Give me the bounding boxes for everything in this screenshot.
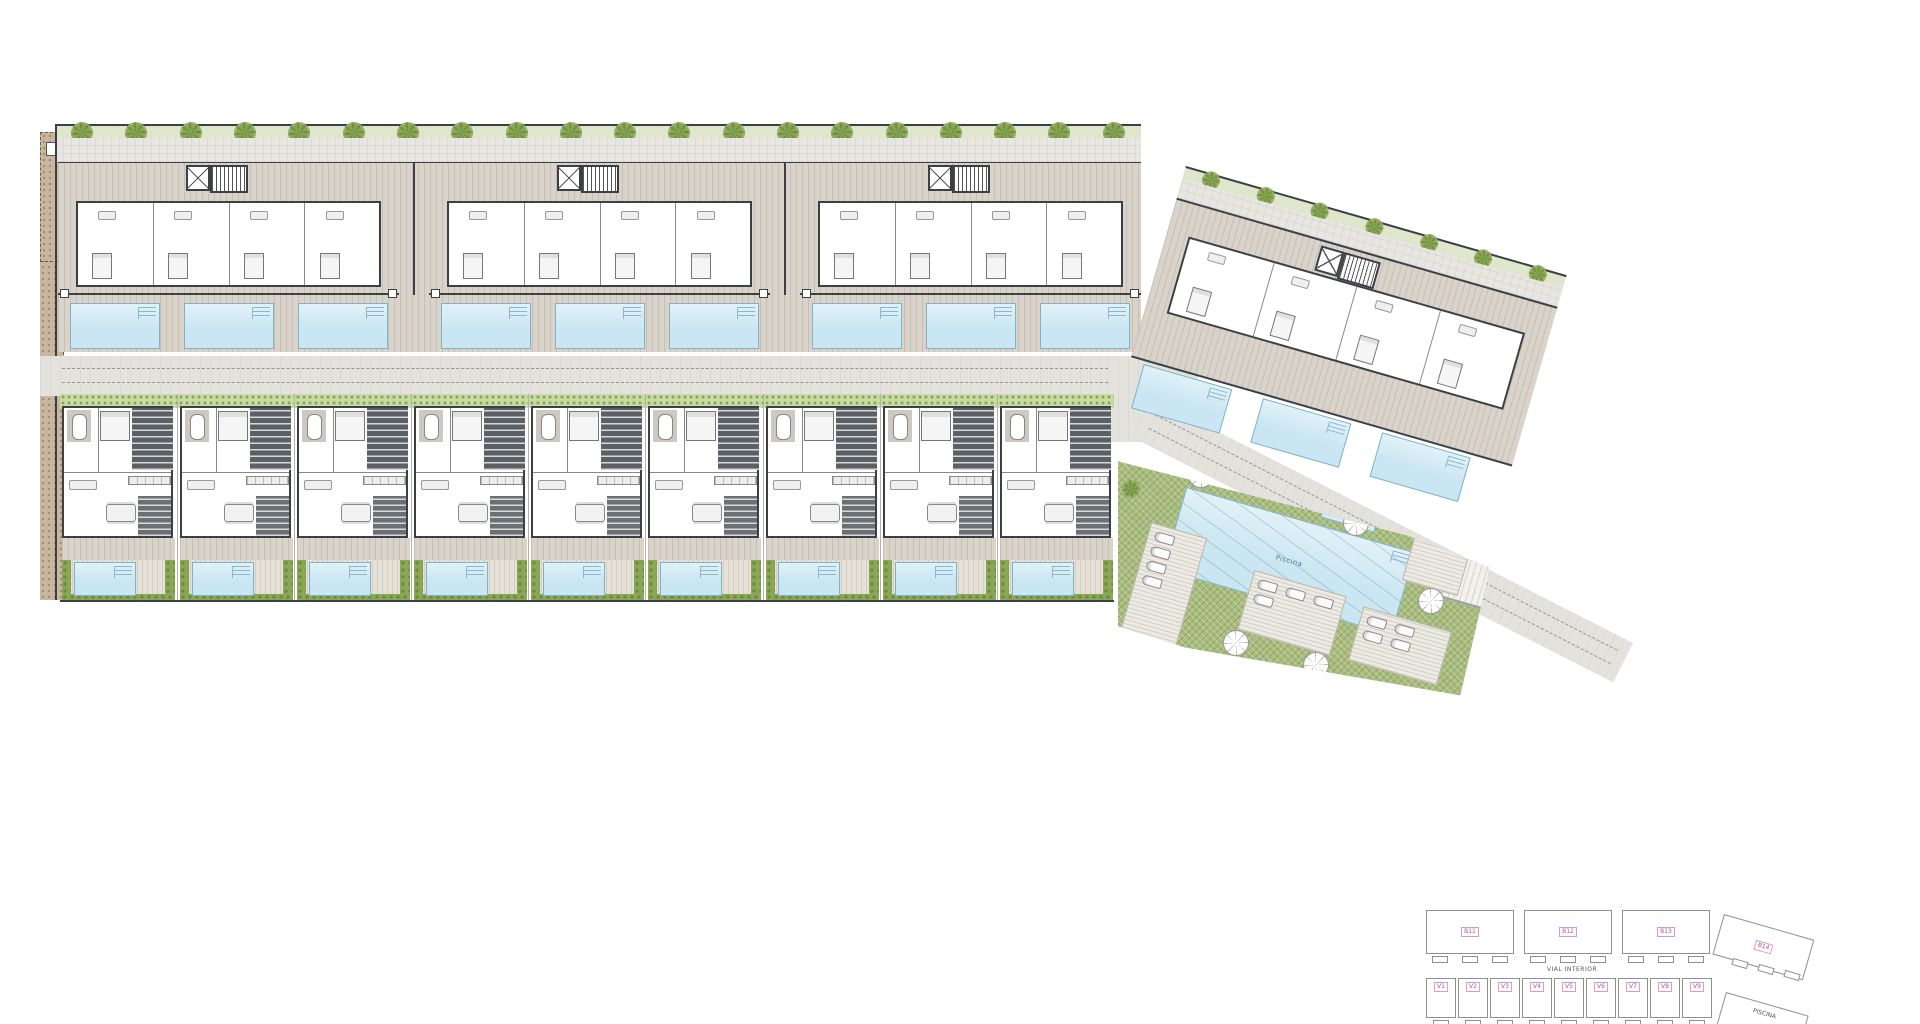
bed-icon bbox=[1437, 359, 1463, 390]
key-plan-pool-square bbox=[1529, 1020, 1545, 1024]
key-plan-villa: V5 bbox=[1554, 978, 1584, 1018]
private-pool bbox=[309, 562, 371, 596]
pool-steps-icon bbox=[252, 307, 270, 319]
bathtub-icon bbox=[653, 410, 677, 442]
interior-wall bbox=[919, 408, 920, 472]
key-plan-villa: V3 bbox=[1490, 978, 1520, 1018]
villa-unit bbox=[411, 394, 528, 600]
interior-wall bbox=[971, 203, 972, 285]
villa-unit bbox=[880, 394, 997, 600]
villa-terrace-deck bbox=[531, 538, 644, 560]
key-plan-villa-label: V7 bbox=[1626, 982, 1640, 992]
dining-table-icon bbox=[810, 504, 840, 522]
sofa-icon bbox=[1068, 211, 1086, 220]
bed-icon bbox=[1353, 335, 1379, 366]
key-plan-pool-square bbox=[1657, 1020, 1673, 1024]
key-plan-pool-square bbox=[1433, 1020, 1449, 1024]
pergola-post bbox=[1496, 557, 1502, 563]
key-plan-pool-square bbox=[1688, 956, 1704, 963]
bathtub-icon bbox=[536, 410, 560, 442]
kitchen-counter-icon bbox=[480, 476, 523, 485]
pool-steps-icon bbox=[700, 566, 718, 578]
apartment-block bbox=[800, 163, 1141, 353]
sun-deck bbox=[1119, 522, 1207, 651]
bed-icon bbox=[834, 253, 854, 279]
stairs-icon bbox=[953, 408, 994, 470]
bed-icon bbox=[569, 411, 599, 441]
interior-wall bbox=[1335, 287, 1357, 360]
stair-core bbox=[928, 165, 992, 195]
perimeter-hedge-north bbox=[55, 124, 1141, 138]
villa-rear-garden bbox=[414, 560, 527, 600]
pool-steps-icon bbox=[880, 307, 898, 319]
pool-steps-icon bbox=[623, 307, 641, 319]
private-pool bbox=[926, 303, 1016, 349]
tree-icon bbox=[1122, 480, 1140, 498]
kitchen-counter-icon bbox=[832, 476, 875, 485]
interior-road bbox=[40, 356, 1145, 396]
pool-steps-icon bbox=[114, 566, 132, 578]
villa-rear-garden bbox=[531, 560, 644, 600]
sun-lounger bbox=[1256, 579, 1278, 594]
terrace-parapet bbox=[429, 293, 770, 295]
private-pool bbox=[669, 303, 759, 349]
stairs-icon bbox=[959, 496, 992, 536]
key-plan-block: B12 bbox=[1524, 910, 1612, 954]
sofa-icon bbox=[538, 480, 566, 490]
pool-steps-icon bbox=[1326, 421, 1347, 437]
private-pool bbox=[812, 303, 902, 349]
key-plan-villa: V2 bbox=[1458, 978, 1488, 1018]
kitchen-counter-icon bbox=[597, 476, 640, 485]
sofa-icon bbox=[621, 211, 639, 220]
villa-terrace-deck bbox=[766, 538, 879, 560]
interior-wall bbox=[675, 203, 676, 285]
terrace-gate-icon bbox=[431, 289, 440, 298]
bed-icon bbox=[921, 411, 951, 441]
interior-wall bbox=[333, 408, 334, 472]
apartment-blocks-row bbox=[58, 162, 1141, 352]
parasol-icon bbox=[1418, 588, 1444, 614]
dining-table-icon bbox=[224, 504, 254, 522]
bed-icon bbox=[686, 411, 716, 441]
dining-table-icon bbox=[575, 504, 605, 522]
villa-rear-garden bbox=[883, 560, 996, 600]
key-plan-pool-square bbox=[1593, 1020, 1609, 1024]
interior-wall bbox=[216, 408, 217, 472]
key-plan-block-label: B14 bbox=[1753, 940, 1773, 955]
private-pool bbox=[543, 562, 605, 596]
pool-steps-icon bbox=[509, 307, 527, 319]
villas-row bbox=[60, 394, 1114, 600]
sun-lounger bbox=[1145, 560, 1167, 575]
key-plan-pool-square bbox=[1560, 956, 1576, 963]
stair-core bbox=[186, 165, 250, 195]
stairs-icon bbox=[1076, 496, 1109, 536]
stairs-icon bbox=[367, 408, 408, 470]
terrace-gate-icon bbox=[1130, 289, 1139, 298]
key-plan-villa-label: V4 bbox=[1530, 982, 1544, 992]
key-plan-villa: V6 bbox=[1586, 978, 1616, 1018]
villa-footprint bbox=[883, 406, 994, 538]
villa-footprint bbox=[180, 406, 291, 538]
sofa-icon bbox=[773, 480, 801, 490]
sofa-icon bbox=[655, 480, 683, 490]
key-plan-villa-label: V3 bbox=[1498, 982, 1512, 992]
dining-table-icon bbox=[106, 504, 136, 522]
bed-icon bbox=[452, 411, 482, 441]
key-plan-block-label: B11 bbox=[1461, 927, 1479, 937]
kitchen-counter-icon bbox=[246, 476, 289, 485]
interior-wall bbox=[1046, 203, 1047, 285]
bed-icon bbox=[910, 253, 930, 279]
road-dash-line bbox=[62, 368, 1123, 369]
bathtub-icon bbox=[419, 410, 443, 442]
villa-rear-garden bbox=[648, 560, 761, 600]
key-plan-pool-square bbox=[1628, 956, 1644, 963]
sofa-icon bbox=[98, 211, 116, 220]
stairs-icon bbox=[490, 496, 523, 536]
interior-wall bbox=[450, 408, 451, 472]
kitchen-counter-icon bbox=[128, 476, 171, 485]
sun-lounger bbox=[1389, 637, 1411, 652]
dining-table-icon bbox=[927, 504, 957, 522]
sofa-icon bbox=[304, 480, 332, 490]
villa-rear-garden bbox=[1000, 560, 1113, 600]
villa-terrace-deck bbox=[62, 538, 175, 560]
sun-lounger bbox=[1361, 629, 1383, 644]
stairs-icon bbox=[210, 165, 248, 193]
main-pool-label: Piscina bbox=[1275, 553, 1304, 568]
villa-rear-garden bbox=[62, 560, 175, 600]
villa-footprint bbox=[62, 406, 173, 538]
private-pool bbox=[441, 303, 531, 349]
stairs-icon bbox=[138, 496, 171, 536]
bed-icon bbox=[320, 253, 340, 279]
apartment-footprint bbox=[447, 201, 752, 287]
bed-icon bbox=[1186, 287, 1212, 318]
stairs-icon bbox=[724, 496, 757, 536]
villa-unit bbox=[997, 394, 1114, 600]
pool-steps-icon bbox=[583, 566, 601, 578]
private-pool bbox=[426, 562, 488, 596]
private-pool bbox=[74, 562, 136, 596]
stairs-icon bbox=[484, 408, 525, 470]
interior-wall bbox=[600, 203, 601, 285]
stairs-icon bbox=[373, 496, 406, 536]
interior-wall bbox=[1419, 310, 1441, 383]
pool-steps-icon bbox=[232, 566, 250, 578]
dining-table-icon bbox=[1044, 504, 1074, 522]
villa-rear-garden bbox=[297, 560, 410, 600]
parasol-icon bbox=[1223, 630, 1249, 656]
villa-unit bbox=[60, 394, 177, 600]
interior-wall bbox=[802, 408, 803, 472]
sofa-icon bbox=[421, 480, 449, 490]
bed-icon bbox=[244, 253, 264, 279]
bathtub-icon bbox=[67, 410, 91, 442]
bed-icon bbox=[1062, 253, 1082, 279]
apartment-block bbox=[58, 163, 399, 353]
interior-wall bbox=[416, 472, 523, 473]
villa-terrace-deck bbox=[883, 538, 996, 560]
key-plan-pool-square bbox=[1465, 1020, 1481, 1024]
pool-steps-icon bbox=[366, 307, 384, 319]
sofa-icon bbox=[1007, 480, 1035, 490]
key-plan-villa-label: V6 bbox=[1594, 982, 1608, 992]
pool-steps-icon bbox=[818, 566, 836, 578]
elevator-icon bbox=[186, 165, 210, 191]
sun-lounger bbox=[1284, 587, 1306, 602]
villa-terrace-deck bbox=[648, 538, 761, 560]
interior-wall bbox=[1252, 263, 1274, 336]
sofa-icon bbox=[250, 211, 268, 220]
private-pool bbox=[660, 562, 722, 596]
villa-footprint bbox=[297, 406, 408, 538]
dining-table-icon bbox=[692, 504, 722, 522]
stairs-icon bbox=[132, 408, 173, 470]
bed-icon bbox=[539, 253, 559, 279]
stairs-icon bbox=[581, 165, 619, 193]
bed-icon bbox=[168, 253, 188, 279]
bathtub-icon bbox=[185, 410, 209, 442]
interior-wall bbox=[533, 472, 640, 473]
pool-steps-icon bbox=[1207, 387, 1228, 403]
terrace-gate-icon bbox=[759, 289, 768, 298]
private-pool bbox=[298, 303, 388, 349]
key-plan-pool-square bbox=[1625, 1020, 1641, 1024]
private-pool bbox=[1012, 562, 1074, 596]
key-plan-pool-square bbox=[1530, 956, 1546, 963]
bed-icon bbox=[218, 411, 248, 441]
key-plan-pool-square bbox=[1689, 1020, 1705, 1024]
interior-wall bbox=[1002, 472, 1109, 473]
interior-wall bbox=[299, 472, 406, 473]
interior-wall bbox=[684, 408, 685, 472]
interior-wall bbox=[304, 203, 305, 285]
sofa-icon bbox=[890, 480, 918, 490]
key-plan-block-label: B12 bbox=[1559, 927, 1577, 937]
villa-terrace-deck bbox=[414, 538, 527, 560]
villa-footprint bbox=[648, 406, 759, 538]
pool-steps-icon bbox=[994, 307, 1012, 319]
sofa-icon bbox=[545, 211, 563, 220]
bed-icon bbox=[92, 253, 112, 279]
block-divider-wall bbox=[413, 163, 415, 295]
dining-table-icon bbox=[341, 504, 371, 522]
key-plan-pool-square bbox=[1497, 1020, 1513, 1024]
kitchen-counter-icon bbox=[949, 476, 992, 485]
kitchen-counter-icon bbox=[1066, 476, 1109, 485]
villa-footprint bbox=[1000, 406, 1111, 538]
interior-wall bbox=[768, 472, 875, 473]
key-plan: VIAL INTERIOR PISCINA B11B12B13B14V1V2V3… bbox=[1418, 900, 1920, 1024]
key-plan-pool-square bbox=[1462, 956, 1478, 963]
apartment-footprint bbox=[818, 201, 1123, 287]
bed-icon bbox=[691, 253, 711, 279]
key-plan-pool-square bbox=[1561, 1020, 1577, 1024]
kitchen-counter-icon bbox=[714, 476, 757, 485]
key-plan-pool-square bbox=[1432, 956, 1448, 963]
key-plan-villa-label: V1 bbox=[1434, 982, 1448, 992]
villa-footprint bbox=[766, 406, 877, 538]
bathtub-icon bbox=[1005, 410, 1029, 442]
parasol-icon bbox=[1303, 652, 1329, 678]
sofa-icon bbox=[840, 211, 858, 220]
interior-wall bbox=[98, 408, 99, 472]
stairs-icon bbox=[718, 408, 759, 470]
key-plan-villa-label: V5 bbox=[1562, 982, 1576, 992]
interior-wall bbox=[567, 408, 568, 472]
terrace-gate-icon bbox=[388, 289, 397, 298]
block-divider-wall bbox=[784, 163, 786, 295]
sofa-icon bbox=[992, 211, 1010, 220]
road-dash-line bbox=[62, 382, 1123, 383]
villa-footprint bbox=[414, 406, 525, 538]
bathtub-icon bbox=[888, 410, 912, 442]
key-plan-villa: V1 bbox=[1426, 978, 1456, 1018]
terrace-gate-icon bbox=[802, 289, 811, 298]
apartment-block bbox=[429, 163, 770, 353]
pool-steps-icon bbox=[737, 307, 755, 319]
sun-lounger bbox=[1366, 615, 1388, 630]
pool-steps-icon bbox=[1445, 456, 1466, 472]
key-plan-villa: V4 bbox=[1522, 978, 1552, 1018]
sun-lounger bbox=[1252, 593, 1274, 608]
sun-lounger bbox=[1393, 623, 1415, 638]
pool-steps-icon bbox=[138, 307, 156, 319]
private-pool bbox=[192, 562, 254, 596]
pool-steps-icon bbox=[1052, 566, 1070, 578]
villa-unit bbox=[177, 394, 294, 600]
bed-icon bbox=[100, 411, 130, 441]
key-plan-villa-label: V2 bbox=[1466, 982, 1480, 992]
private-pool bbox=[184, 303, 274, 349]
interior-wall bbox=[1036, 408, 1037, 472]
villa-unit bbox=[645, 394, 762, 600]
stairs-icon bbox=[842, 496, 875, 536]
private-pool bbox=[1040, 303, 1130, 349]
bed-icon bbox=[804, 411, 834, 441]
key-plan-villa-label: V9 bbox=[1690, 982, 1704, 992]
bed-icon bbox=[1038, 411, 1068, 441]
sofa-icon bbox=[1374, 300, 1394, 314]
sofa-icon bbox=[469, 211, 487, 220]
site-plan-canvas: Piscina Piscina infantil VIAL INTERIOR P… bbox=[0, 0, 1920, 1024]
pool-steps-icon bbox=[935, 566, 953, 578]
sofa-icon bbox=[1290, 276, 1310, 290]
terrace-parapet bbox=[800, 293, 1141, 295]
key-plan-villa-label: V8 bbox=[1658, 982, 1672, 992]
bed-icon bbox=[615, 253, 635, 279]
interior-wall bbox=[885, 472, 992, 473]
sofa-icon bbox=[174, 211, 192, 220]
interior-wall bbox=[182, 472, 289, 473]
interior-wall bbox=[153, 203, 154, 285]
sofa-icon bbox=[1458, 324, 1478, 338]
key-plan-pool-square bbox=[1492, 956, 1508, 963]
interior-wall bbox=[895, 203, 896, 285]
pool-steps-icon bbox=[466, 566, 484, 578]
bed-icon bbox=[335, 411, 365, 441]
sun-lounger bbox=[1312, 595, 1334, 610]
sun-lounger bbox=[1149, 545, 1171, 560]
sun-deck bbox=[1348, 606, 1452, 685]
terrace-gate-icon bbox=[60, 289, 69, 298]
stairs-icon bbox=[836, 408, 877, 470]
stairs-icon bbox=[952, 165, 990, 193]
bathtub-icon bbox=[771, 410, 795, 442]
sofa-icon bbox=[916, 211, 934, 220]
private-pool bbox=[778, 562, 840, 596]
sofa-icon bbox=[326, 211, 344, 220]
sofa-icon bbox=[69, 480, 97, 490]
bed-icon bbox=[463, 253, 483, 279]
bed-icon bbox=[986, 253, 1006, 279]
villa-footprint bbox=[531, 406, 642, 538]
perimeter-walk-north bbox=[55, 138, 1141, 162]
stair-core bbox=[557, 165, 621, 195]
villa-unit bbox=[528, 394, 645, 600]
sun-lounger bbox=[1141, 574, 1163, 589]
sofa-icon bbox=[187, 480, 215, 490]
villa-rear-garden bbox=[180, 560, 293, 600]
dining-table-icon bbox=[458, 504, 488, 522]
terrace-parapet bbox=[58, 293, 399, 295]
bed-icon bbox=[1269, 311, 1295, 342]
villa-unit bbox=[294, 394, 411, 600]
villa-terrace-deck bbox=[297, 538, 410, 560]
stairs-icon bbox=[256, 496, 289, 536]
key-plan-block-label: B13 bbox=[1657, 927, 1675, 937]
interior-wall bbox=[229, 203, 230, 285]
elevator-icon bbox=[557, 165, 581, 191]
apartment-footprint bbox=[76, 201, 381, 287]
site-boundary-south-line bbox=[60, 600, 1114, 602]
key-plan-pool-square bbox=[1658, 956, 1674, 963]
key-plan-communal-block: PISCINA bbox=[1713, 992, 1808, 1024]
private-pool bbox=[895, 562, 957, 596]
interior-wall bbox=[524, 203, 525, 285]
private-pool bbox=[555, 303, 645, 349]
sun-lounger bbox=[1153, 531, 1175, 546]
kitchen-counter-icon bbox=[363, 476, 406, 485]
key-plan-road-label: VIAL INTERIOR bbox=[1426, 966, 1718, 973]
villa-unit bbox=[763, 394, 880, 600]
key-plan-villa: V8 bbox=[1650, 978, 1680, 1018]
stairs-icon bbox=[607, 496, 640, 536]
sofa-icon bbox=[697, 211, 715, 220]
pool-steps-icon bbox=[349, 566, 367, 578]
stairs-icon bbox=[601, 408, 642, 470]
elevator-icon bbox=[928, 165, 952, 191]
key-plan-villa: V9 bbox=[1682, 978, 1712, 1018]
stairs-icon bbox=[250, 408, 291, 470]
villa-rear-garden bbox=[766, 560, 879, 600]
key-plan-block: B11 bbox=[1426, 910, 1514, 954]
villa-terrace-deck bbox=[1000, 538, 1113, 560]
interior-wall bbox=[64, 472, 171, 473]
interior-wall bbox=[650, 472, 757, 473]
key-plan-block: B13 bbox=[1622, 910, 1710, 954]
key-plan-pool-square bbox=[1590, 956, 1606, 963]
pool-steps-icon bbox=[1108, 307, 1126, 319]
sofa-icon bbox=[1207, 252, 1227, 266]
private-pool bbox=[70, 303, 160, 349]
stairs-icon bbox=[1070, 408, 1111, 470]
bathtub-icon bbox=[302, 410, 326, 442]
key-plan-villa: V7 bbox=[1618, 978, 1648, 1018]
